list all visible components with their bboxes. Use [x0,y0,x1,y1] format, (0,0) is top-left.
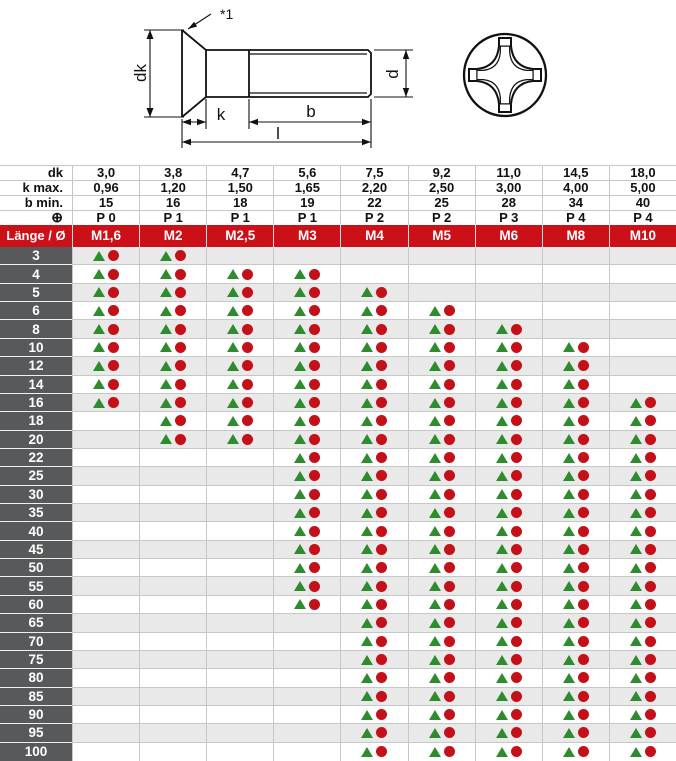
availability-cell [609,302,676,320]
size-column-header: M6 [475,225,542,247]
availability-cell [408,376,475,394]
circle-marker-icon [376,599,387,610]
availability-cell [609,339,676,357]
circle-marker-icon [309,305,320,316]
triangle-marker-icon [429,599,441,609]
spec-row: k max.0,961,201,501,652,202,503,004,005,… [0,181,676,196]
availability-cell [475,284,542,302]
table-row: 70 [0,633,676,651]
availability-cell [408,284,475,302]
availability-cell [609,431,676,449]
triangle-marker-icon [361,710,373,720]
size-column-header: M3 [273,225,340,247]
spec-value-cell: P 1 [206,211,273,225]
availability-cell [408,577,475,595]
triangle-marker-icon [93,269,105,279]
spec-value-cell: 34 [542,196,609,210]
availability-cell [206,431,273,449]
ref-mark-label: *1 [220,6,233,22]
triangle-marker-icon [361,342,373,352]
availability-cell [273,706,340,724]
availability-cell [139,522,206,540]
availability-cell [206,522,273,540]
availability-cell [206,614,273,632]
circle-marker-icon [511,324,522,335]
circle-marker-icon [578,617,589,628]
circle-marker-icon [376,342,387,353]
availability-cell [139,467,206,485]
availability-cell [273,486,340,504]
triangle-marker-icon [93,324,105,334]
triangle-marker-icon [93,342,105,352]
circle-marker-icon [309,269,320,280]
triangle-marker-icon [630,508,642,518]
table-row: 18 [0,412,676,430]
catalog-page: dk k b l d *1 dk3,03,84,75,67,59,211,014… [0,0,676,761]
circle-marker-icon [645,489,656,500]
table-row: 55 [0,577,676,595]
length-row-label: 3 [0,247,72,265]
availability-cell [206,651,273,669]
table-row: 8 [0,320,676,338]
availability-cell [206,504,273,522]
availability-cell [609,651,676,669]
circle-marker-icon [444,305,455,316]
circle-marker-icon [645,415,656,426]
triangle-marker-icon [496,710,508,720]
circle-marker-icon [645,746,656,757]
availability-cell [542,522,609,540]
availability-cell [609,522,676,540]
triangle-marker-icon [294,379,306,389]
triangle-marker-icon [361,636,373,646]
availability-cell [475,376,542,394]
triangle-marker-icon [361,361,373,371]
circle-marker-icon [242,415,253,426]
circle-marker-icon [108,305,119,316]
availability-cell [340,633,407,651]
availability-cell [475,449,542,467]
triangle-marker-icon [496,489,508,499]
circle-marker-icon [511,434,522,445]
circle-marker-icon [578,709,589,720]
spec-value-cell: 2,20 [340,181,407,195]
circle-marker-icon [444,470,455,481]
availability-cell [340,559,407,577]
availability-cell [542,614,609,632]
circle-marker-icon [175,397,186,408]
availability-cell [139,320,206,338]
availability-cell [340,357,407,375]
triangle-marker-icon [160,361,172,371]
availability-cell [542,265,609,283]
circle-marker-icon [511,709,522,720]
availability-cell [340,504,407,522]
availability-cell [408,541,475,559]
triangle-marker-icon [160,251,172,261]
circle-marker-icon [645,672,656,683]
triangle-marker-icon [429,379,441,389]
triangle-marker-icon [429,416,441,426]
circle-marker-icon [645,617,656,628]
triangle-marker-icon [361,526,373,536]
circle-marker-icon [444,562,455,573]
table-row: 3 [0,247,676,265]
spec-value-cell: 25 [408,196,475,210]
spec-value-cell: 1,50 [206,181,273,195]
triangle-marker-icon [563,379,575,389]
availability-cell [340,320,407,338]
availability-cell [475,431,542,449]
triangle-marker-icon [294,563,306,573]
triangle-marker-icon [563,526,575,536]
triangle-marker-icon [563,361,575,371]
availability-cell [609,559,676,577]
circle-marker-icon [108,342,119,353]
availability-cell [408,688,475,706]
circle-marker-icon [376,489,387,500]
triangle-marker-icon [563,728,575,738]
availability-cell [206,486,273,504]
availability-cell [408,724,475,742]
circle-marker-icon [444,489,455,500]
triangle-marker-icon [496,636,508,646]
triangle-marker-icon [496,361,508,371]
length-row-label: 60 [0,596,72,614]
circle-marker-icon [511,746,522,757]
triangle-marker-icon [496,655,508,665]
availability-cell [206,339,273,357]
triangle-marker-icon [563,342,575,352]
triangle-marker-icon [563,434,575,444]
circle-marker-icon [309,379,320,390]
availability-cell [408,669,475,687]
spec-value-cell: 3,0 [72,166,139,180]
circle-marker-icon [309,397,320,408]
triangle-marker-icon [294,361,306,371]
circle-marker-icon [444,599,455,610]
availability-cell [609,504,676,522]
triangle-marker-icon [563,544,575,554]
triangle-marker-icon [563,636,575,646]
availability-cell [542,412,609,430]
table-row: 35 [0,504,676,522]
availability-cell [72,596,139,614]
availability-cell [273,320,340,338]
triangle-marker-icon [361,489,373,499]
circle-marker-icon [444,544,455,555]
availability-cell [139,669,206,687]
length-row-label: 20 [0,431,72,449]
circle-marker-icon [175,434,186,445]
availability-cell [340,431,407,449]
length-row-label: 50 [0,559,72,577]
circle-marker-icon [444,452,455,463]
length-size-matrix: 3456810121416182022253035404550556065707… [0,247,676,761]
availability-cell [273,633,340,651]
triangle-marker-icon [160,269,172,279]
circle-marker-icon [444,617,455,628]
triangle-marker-icon [294,287,306,297]
circle-marker-icon [511,342,522,353]
triangle-marker-icon [160,416,172,426]
triangle-marker-icon [563,508,575,518]
k-dimension-label: k [217,105,226,124]
triangle-marker-icon [630,636,642,646]
availability-cell [542,743,609,761]
dimension-spec-table: dk3,03,84,75,67,59,211,014,518,0k max.0,… [0,165,676,226]
availability-cell [206,412,273,430]
availability-cell [273,504,340,522]
availability-cell [542,596,609,614]
table-row: 6 [0,302,676,320]
triangle-marker-icon [294,581,306,591]
spec-value-cell: 28 [475,196,542,210]
availability-cell [72,302,139,320]
triangle-marker-icon [294,434,306,444]
triangle-marker-icon [496,379,508,389]
availability-cell [139,284,206,302]
triangle-marker-icon [160,324,172,334]
availability-cell [273,541,340,559]
availability-cell [273,596,340,614]
availability-cell [408,633,475,651]
availability-cell [340,669,407,687]
availability-cell [542,376,609,394]
availability-cell [475,614,542,632]
availability-cell [340,688,407,706]
circle-marker-icon [108,397,119,408]
circle-marker-icon [511,562,522,573]
triangle-marker-icon [93,251,105,261]
availability-cell [340,522,407,540]
size-header-row: Länge / ØM1,6M2M2,5M3M4M5M6M8M10 [0,225,676,247]
triangle-marker-icon [630,691,642,701]
circle-marker-icon [511,691,522,702]
availability-cell [542,339,609,357]
availability-cell [340,706,407,724]
availability-cell [340,284,407,302]
triangle-marker-icon [361,416,373,426]
availability-cell [475,247,542,265]
triangle-marker-icon [294,489,306,499]
circle-marker-icon [376,691,387,702]
triangle-marker-icon [429,471,441,481]
triangle-marker-icon [361,747,373,757]
triangle-marker-icon [361,434,373,444]
spec-value-cell: P 2 [408,211,475,225]
availability-cell [72,541,139,559]
availability-cell [206,467,273,485]
availability-cell [475,339,542,357]
circle-marker-icon [444,746,455,757]
availability-cell [408,302,475,320]
triangle-marker-icon [361,453,373,463]
availability-cell [273,394,340,412]
availability-cell [408,504,475,522]
triangle-marker-icon [496,416,508,426]
circle-marker-icon [578,581,589,592]
triangle-marker-icon [160,287,172,297]
circle-marker-icon [175,287,186,298]
availability-cell [542,394,609,412]
circle-marker-icon [578,452,589,463]
triangle-marker-icon [294,471,306,481]
circle-marker-icon [511,581,522,592]
availability-cell [72,431,139,449]
circle-marker-icon [376,746,387,757]
availability-cell [609,265,676,283]
table-row: 10 [0,339,676,357]
table-row: 85 [0,688,676,706]
circle-marker-icon [444,672,455,683]
availability-cell [206,449,273,467]
triangle-marker-icon [630,416,642,426]
spec-value-cell: 9,2 [408,166,475,180]
availability-cell [542,486,609,504]
circle-marker-icon [645,599,656,610]
circle-marker-icon [578,672,589,683]
circle-marker-icon [511,415,522,426]
triangle-marker-icon [429,655,441,665]
triangle-marker-icon [496,599,508,609]
circle-marker-icon [309,526,320,537]
circle-marker-icon [578,507,589,518]
circle-marker-icon [309,360,320,371]
availability-cell [542,577,609,595]
triangle-marker-icon [294,453,306,463]
availability-cell [72,669,139,687]
table-row: 75 [0,651,676,669]
spec-value-cell: P 3 [475,211,542,225]
triangle-marker-icon [630,599,642,609]
spec-value-cell: P 4 [542,211,609,225]
availability-cell [609,706,676,724]
triangle-marker-icon [496,618,508,628]
triangle-marker-icon [630,544,642,554]
circle-marker-icon [578,544,589,555]
availability-cell [542,247,609,265]
circle-marker-icon [242,269,253,280]
triangle-marker-icon [227,287,239,297]
table-row: 80 [0,669,676,687]
availability-cell [72,743,139,761]
availability-cell [475,522,542,540]
availability-cell [475,504,542,522]
circle-marker-icon [309,562,320,573]
circle-marker-icon [511,397,522,408]
circle-marker-icon [511,470,522,481]
availability-cell [408,614,475,632]
triangle-marker-icon [361,673,373,683]
triangle-marker-icon [361,544,373,554]
triangle-marker-icon [429,710,441,720]
availability-cell [72,265,139,283]
availability-cell [139,504,206,522]
circle-marker-icon [645,636,656,647]
triangle-marker-icon [563,691,575,701]
triangle-marker-icon [227,269,239,279]
length-row-label: 95 [0,724,72,742]
availability-cell [475,633,542,651]
length-row-label: 10 [0,339,72,357]
circle-marker-icon [511,452,522,463]
spec-value-cell: 1,65 [273,181,340,195]
availability-cell [273,357,340,375]
triangle-marker-icon [630,747,642,757]
spec-row-label: b min. [0,196,72,210]
availability-cell [72,339,139,357]
availability-cell [139,486,206,504]
screw-technical-drawing: dk k b l d *1 [0,0,676,160]
phillips-head-view [464,34,546,116]
availability-cell [475,394,542,412]
table-row: 50 [0,559,676,577]
triangle-marker-icon [429,434,441,444]
circle-marker-icon [376,617,387,628]
triangle-marker-icon [227,416,239,426]
circle-marker-icon [242,305,253,316]
triangle-marker-icon [496,342,508,352]
triangle-marker-icon [361,581,373,591]
availability-cell [475,688,542,706]
length-row-label: 35 [0,504,72,522]
circle-marker-icon [175,342,186,353]
circle-marker-icon [645,562,656,573]
triangle-marker-icon [429,526,441,536]
circle-marker-icon [175,250,186,261]
circle-marker-icon [175,360,186,371]
table-row: 4 [0,265,676,283]
triangle-marker-icon [361,563,373,573]
circle-marker-icon [108,379,119,390]
triangle-marker-icon [563,618,575,628]
circle-marker-icon [376,672,387,683]
circle-marker-icon [444,526,455,537]
triangle-marker-icon [294,306,306,316]
availability-cell [609,743,676,761]
circle-marker-icon [645,544,656,555]
circle-marker-icon [376,507,387,518]
availability-cell [609,688,676,706]
circle-marker-icon [175,379,186,390]
availability-cell [408,265,475,283]
triangle-marker-icon [496,453,508,463]
circle-marker-icon [444,654,455,665]
triangle-marker-icon [630,655,642,665]
availability-cell [273,688,340,706]
circle-marker-icon [645,452,656,463]
availability-cell [139,541,206,559]
circle-marker-icon [376,544,387,555]
availability-cell [542,669,609,687]
availability-cell [206,743,273,761]
availability-cell [609,357,676,375]
availability-cell [340,743,407,761]
availability-cell [72,247,139,265]
circle-marker-icon [578,654,589,665]
triangle-marker-icon [563,489,575,499]
triangle-marker-icon [630,489,642,499]
triangle-marker-icon [496,398,508,408]
circle-marker-icon [511,379,522,390]
availability-cell [139,265,206,283]
triangle-marker-icon [361,287,373,297]
availability-cell [609,596,676,614]
circle-marker-icon [108,287,119,298]
circle-marker-icon [108,269,119,280]
length-row-label: 30 [0,486,72,504]
